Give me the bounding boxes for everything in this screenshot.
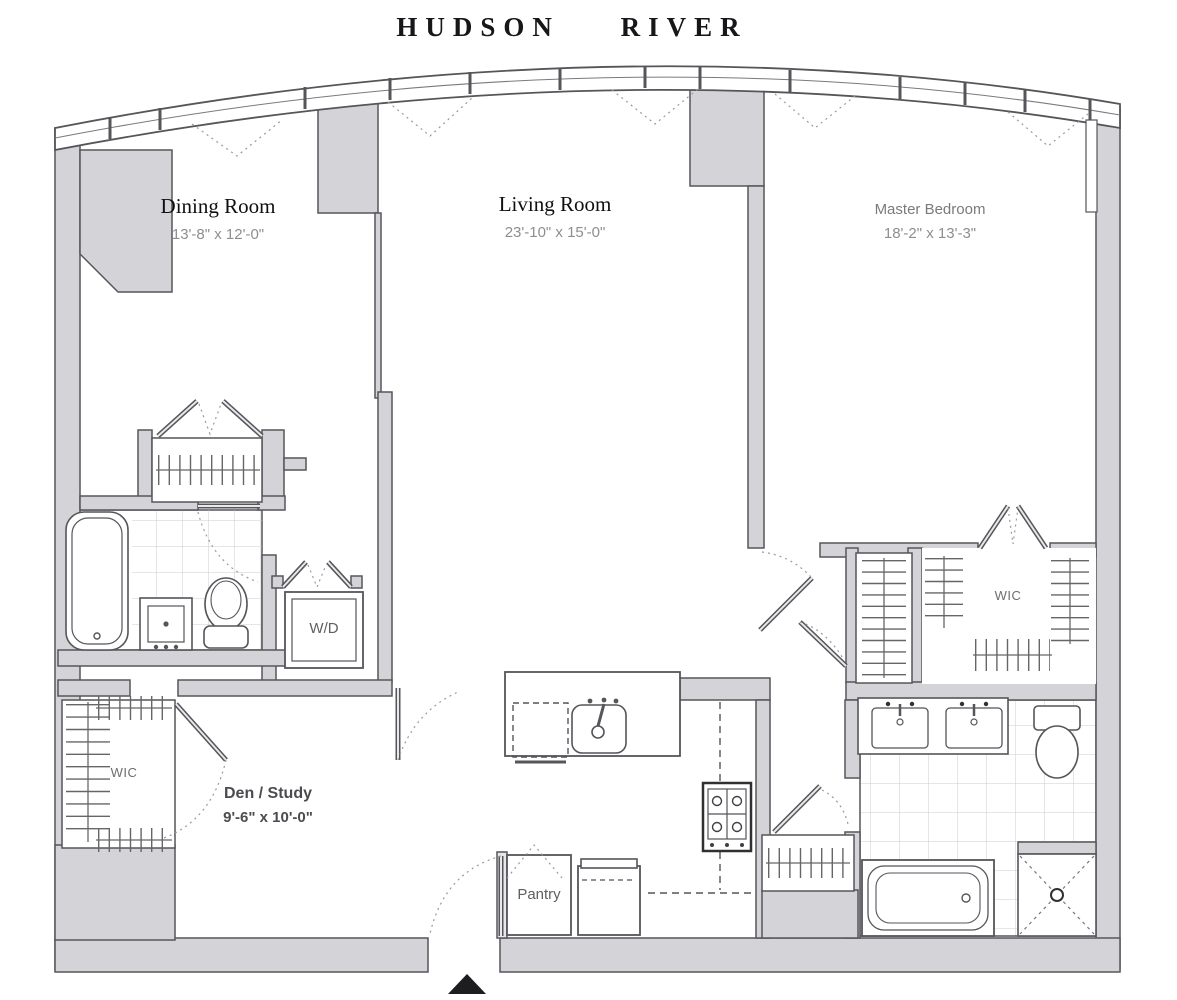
living-room-label: Living Room 23'-10" x 15'-0" xyxy=(499,192,612,241)
refrigerator xyxy=(578,859,640,935)
wic-right-label: WIC xyxy=(995,588,1022,603)
den-study-name: Den / Study xyxy=(223,785,313,803)
master-bedroom-name: Master Bedroom xyxy=(875,201,986,218)
plan-title: HUDSON RIVER xyxy=(396,12,747,43)
window-wall xyxy=(55,66,1120,212)
toilet-left xyxy=(204,578,248,648)
kitchen-sink xyxy=(572,698,626,753)
wic-left-label: WIC xyxy=(111,765,138,780)
pantry-label: Pantry xyxy=(517,886,560,903)
den-study-label: Den / Study 9'-6" x 10'-0" xyxy=(223,785,313,826)
living-room-name: Living Room xyxy=(499,192,612,217)
dining-room-label: Dining Room 13'-8" x 12'-0" xyxy=(161,194,276,243)
floor-plan-drawing xyxy=(0,0,1177,1000)
shower xyxy=(1018,854,1096,936)
living-room-dims: 23'-10" x 15'-0" xyxy=(499,224,612,241)
dining-room-dims: 13'-8" x 12'-0" xyxy=(161,226,276,243)
stove xyxy=(703,783,751,851)
sink-left xyxy=(140,598,192,650)
bathtub-master xyxy=(862,860,994,936)
side-window xyxy=(1086,120,1097,212)
floor-plan: HUDSON RIVER Dining Room 13'-8" x 12'-0"… xyxy=(0,0,1177,1000)
bathtub-left xyxy=(66,512,128,650)
entry-marker-icon xyxy=(448,974,486,994)
toilet-master xyxy=(1034,706,1080,778)
washer-dryer-label: W/D xyxy=(309,620,338,637)
den-study-dims: 9'-6" x 10'-0" xyxy=(223,809,313,826)
master-bedroom-label: Master Bedroom 18'-2" x 13'-3" xyxy=(875,201,986,242)
dining-room-name: Dining Room xyxy=(161,194,276,219)
master-bedroom-dims: 18'-2" x 13'-3" xyxy=(875,225,986,242)
double-vanity xyxy=(858,698,1008,754)
